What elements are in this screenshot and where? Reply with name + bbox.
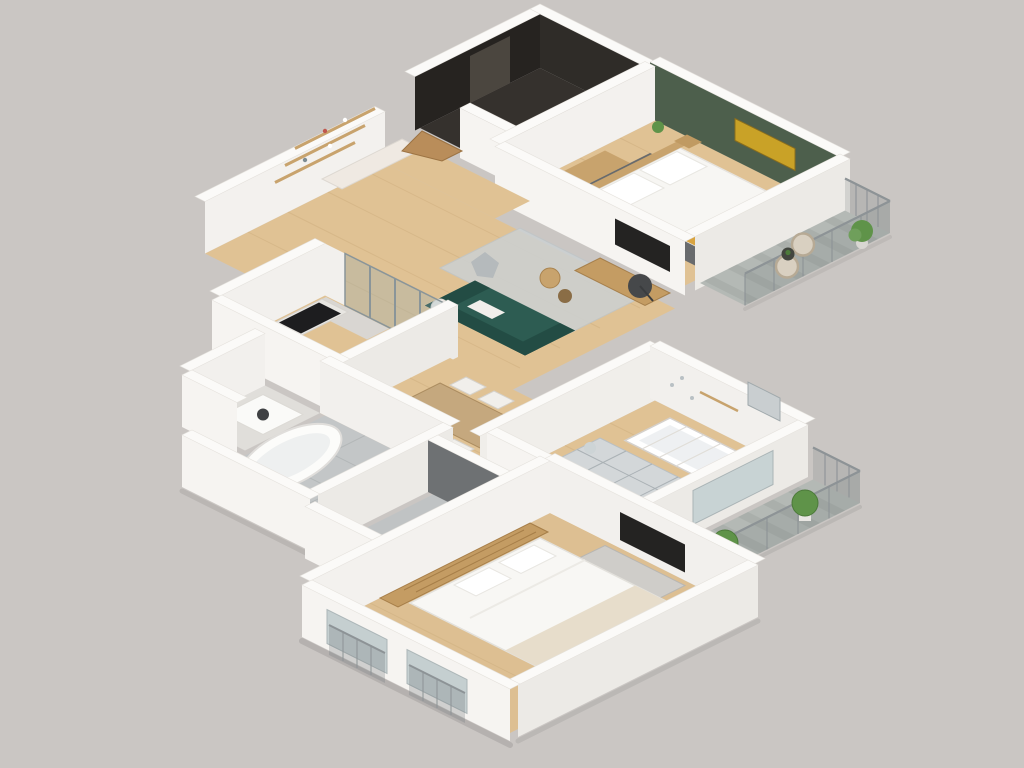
wicker-chair	[792, 234, 814, 256]
coffee-table-small	[558, 289, 572, 303]
potted-plant-highlight	[849, 229, 862, 242]
coffee-table	[540, 268, 560, 288]
washer-door	[257, 409, 269, 421]
bush	[792, 490, 818, 516]
floor-plan-render	[0, 0, 1024, 768]
isometric-apartment-svg	[0, 0, 1024, 768]
table-plant	[785, 250, 790, 255]
plant	[652, 121, 664, 133]
toy-basket	[584, 442, 596, 454]
kitchen-ne-wall-segment	[325, 244, 345, 306]
